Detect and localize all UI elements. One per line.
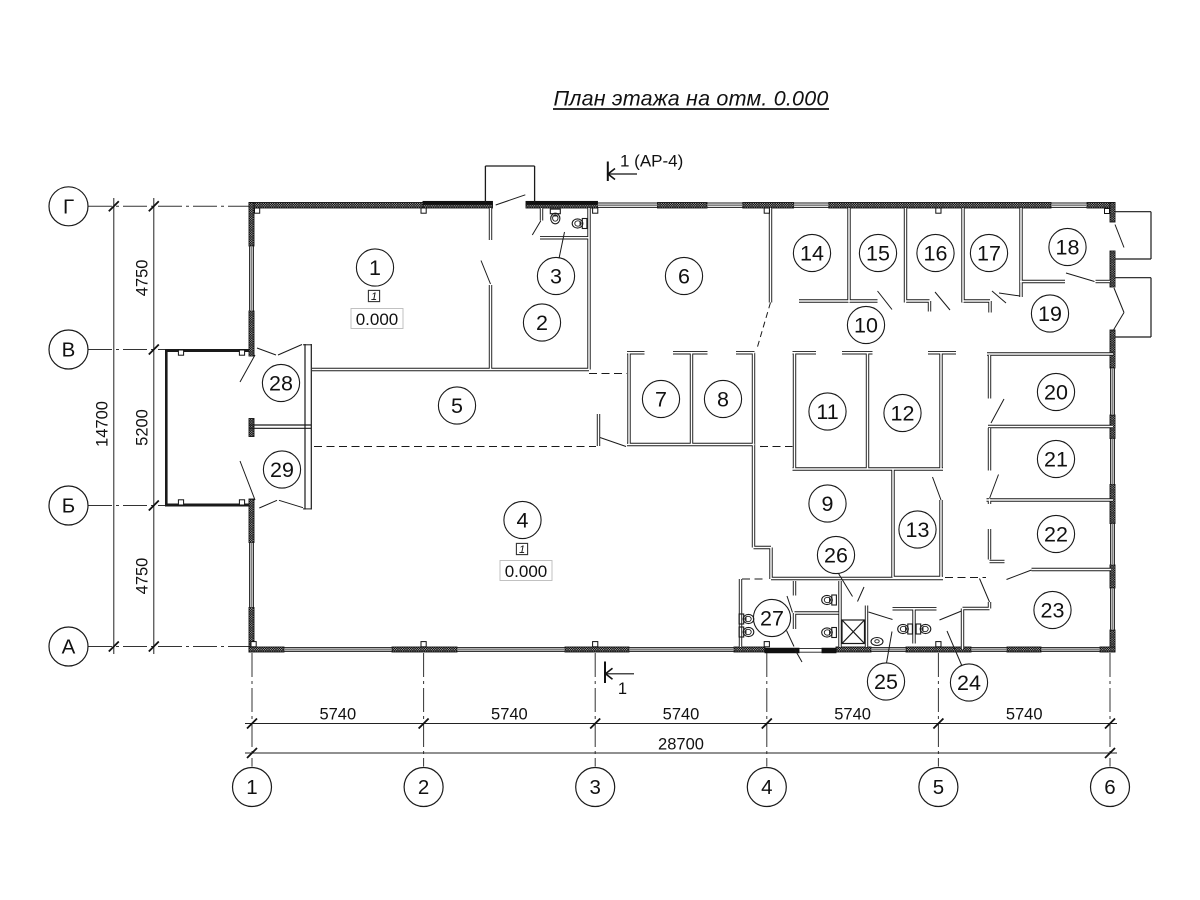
svg-text:5200: 5200 (134, 409, 152, 446)
svg-text:5740: 5740 (319, 706, 356, 724)
svg-text:18: 18 (1056, 236, 1080, 260)
svg-text:28700: 28700 (658, 736, 704, 754)
svg-text:5: 5 (933, 776, 944, 799)
svg-text:План этажа на отм. 0.000: План этажа на отм. 0.000 (553, 87, 828, 111)
svg-text:1 (АР-4): 1 (АР-4) (620, 152, 683, 171)
svg-text:3: 3 (589, 776, 600, 799)
svg-text:4: 4 (517, 509, 529, 533)
svg-text:14700: 14700 (94, 401, 112, 447)
svg-text:1: 1 (519, 544, 525, 556)
svg-text:29: 29 (270, 458, 294, 482)
svg-text:21: 21 (1044, 448, 1068, 472)
svg-text:22: 22 (1044, 523, 1068, 547)
svg-text:2: 2 (536, 311, 548, 335)
svg-text:Г: Г (63, 195, 74, 218)
svg-text:5740: 5740 (491, 706, 528, 724)
svg-text:3: 3 (550, 265, 562, 289)
svg-text:11: 11 (816, 400, 838, 424)
svg-text:2: 2 (418, 776, 429, 799)
svg-text:23: 23 (1041, 599, 1065, 623)
svg-text:4750: 4750 (134, 558, 152, 595)
svg-text:4: 4 (761, 776, 772, 799)
svg-text:17: 17 (977, 242, 1001, 266)
svg-text:28: 28 (269, 372, 293, 396)
svg-text:16: 16 (924, 242, 948, 266)
svg-text:В: В (62, 339, 76, 362)
svg-text:А: А (62, 636, 76, 659)
svg-text:1: 1 (246, 776, 257, 799)
svg-text:1: 1 (618, 680, 627, 698)
svg-text:20: 20 (1044, 381, 1068, 405)
svg-text:6: 6 (1104, 776, 1115, 799)
svg-text:7: 7 (655, 388, 667, 412)
svg-text:0.000: 0.000 (505, 562, 548, 581)
svg-text:5740: 5740 (663, 706, 700, 724)
svg-text:4750: 4750 (134, 260, 152, 297)
svg-text:15: 15 (866, 242, 890, 266)
svg-text:0.000: 0.000 (356, 310, 399, 329)
svg-text:5740: 5740 (834, 706, 871, 724)
svg-text:Б: Б (62, 495, 75, 518)
svg-text:14: 14 (800, 242, 824, 266)
svg-text:9: 9 (822, 492, 834, 516)
svg-text:10: 10 (854, 314, 878, 338)
svg-text:27: 27 (760, 607, 784, 631)
svg-text:1: 1 (371, 291, 377, 303)
svg-text:13: 13 (906, 518, 930, 542)
svg-text:24: 24 (957, 671, 981, 695)
svg-text:8: 8 (717, 388, 729, 412)
svg-text:12: 12 (891, 402, 915, 426)
svg-text:25: 25 (874, 670, 898, 694)
svg-text:5740: 5740 (1006, 706, 1043, 724)
svg-text:6: 6 (678, 265, 690, 289)
svg-text:5: 5 (451, 394, 463, 418)
svg-text:26: 26 (824, 544, 848, 568)
svg-text:19: 19 (1038, 302, 1062, 326)
svg-text:1: 1 (369, 256, 381, 280)
